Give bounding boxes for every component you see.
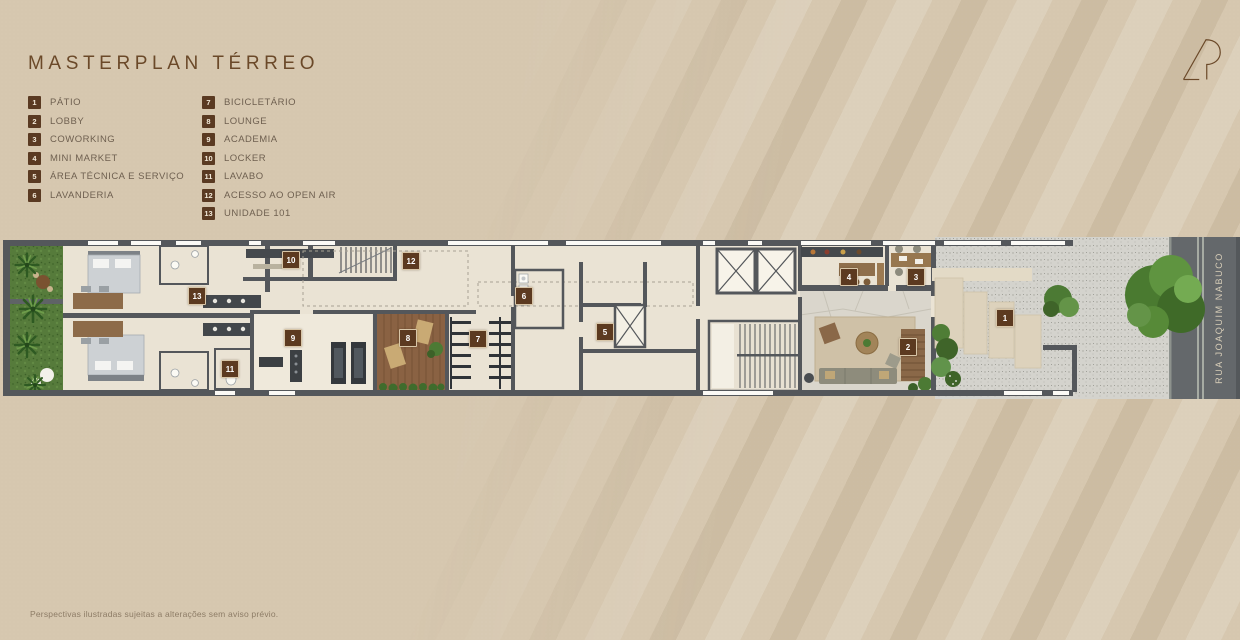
legend-item-9: 9ACADEMIA: [202, 133, 376, 146]
legend-item-label: LOUNGE: [224, 116, 267, 127]
legend-item-label: ÁREA TÉCNICA E SERVIÇO: [50, 171, 184, 182]
legend-item-12: 12ACESSO AO OPEN AIR: [202, 189, 376, 202]
legend-item-label: BICICLETÁRIO: [224, 97, 296, 108]
legend-item-number: 12: [202, 189, 215, 202]
disclaimer: Perspectivas ilustradas sujeitas a alter…: [30, 609, 278, 619]
legend-item-label: COWORKING: [50, 134, 115, 145]
legend-item-2: 2LOBBY: [28, 115, 202, 128]
legend-item-number: 13: [202, 207, 215, 220]
legend-item-number: 11: [202, 170, 215, 183]
legend-item-5: 5ÁREA TÉCNICA E SERVIÇO: [28, 170, 202, 183]
legend-item-label: LOCKER: [224, 153, 266, 164]
garden: [9, 245, 63, 395]
lounge-deck: [373, 314, 449, 393]
legend-item-3: 3COWORKING: [28, 133, 202, 146]
legend-item-number: 2: [28, 115, 41, 128]
legend-item-number: 7: [202, 96, 215, 109]
legend-item-11: 11LAVABO: [202, 170, 376, 183]
floor-plan: RUA JOAQUIM NABUCO: [3, 237, 1240, 399]
legend-item-number: 4: [28, 152, 41, 165]
legend-item-label: LAVANDERIA: [50, 190, 114, 201]
brand-logo: [1176, 34, 1224, 91]
legend-item-6: 6LAVANDERIA: [28, 189, 202, 202]
legend-item-label: ACADEMIA: [224, 134, 278, 145]
legend-item-label: LAVABO: [224, 171, 264, 182]
legend-item-1: 1PÁTIO: [28, 96, 202, 109]
legend-item-number: 3: [28, 133, 41, 146]
legend-item-number: 8: [202, 115, 215, 128]
legend-item-label: LOBBY: [50, 116, 84, 127]
legend-column-1: 1PÁTIO2LOBBY3COWORKING4MINI MARKET5ÁREA …: [28, 96, 202, 226]
legend-item-label: ACESSO AO OPEN AIR: [224, 190, 336, 201]
legend-item-label: PÁTIO: [50, 97, 81, 108]
elevators: [717, 249, 795, 293]
legend-item-label: UNIDADE 101: [224, 208, 291, 219]
legend-item-number: 1: [28, 96, 41, 109]
legend-item-number: 6: [28, 189, 41, 202]
legend-item-13: 13UNIDADE 101: [202, 207, 376, 220]
main-staircase: [709, 321, 801, 391]
legend-item-number: 5: [28, 170, 41, 183]
legend: 1PÁTIO2LOBBY3COWORKING4MINI MARKET5ÁREA …: [28, 96, 376, 226]
legend-column-2: 7BICICLETÁRIO8LOUNGE9ACADEMIA10LOCKER11L…: [202, 96, 376, 226]
legend-item-number: 9: [202, 133, 215, 146]
street-name-label: RUA JOAQUIM NABUCO: [1214, 252, 1224, 384]
legend-item-7: 7BICICLETÁRIO: [202, 96, 376, 109]
legend-item-number: 10: [202, 152, 215, 165]
legend-item-label: MINI MARKET: [50, 153, 118, 164]
legend-item-10: 10LOCKER: [202, 152, 376, 165]
legend-item-8: 8LOUNGE: [202, 115, 376, 128]
legend-item-4: 4MINI MARKET: [28, 152, 202, 165]
page-title: MASTERPLAN TÉRREO: [28, 53, 319, 75]
